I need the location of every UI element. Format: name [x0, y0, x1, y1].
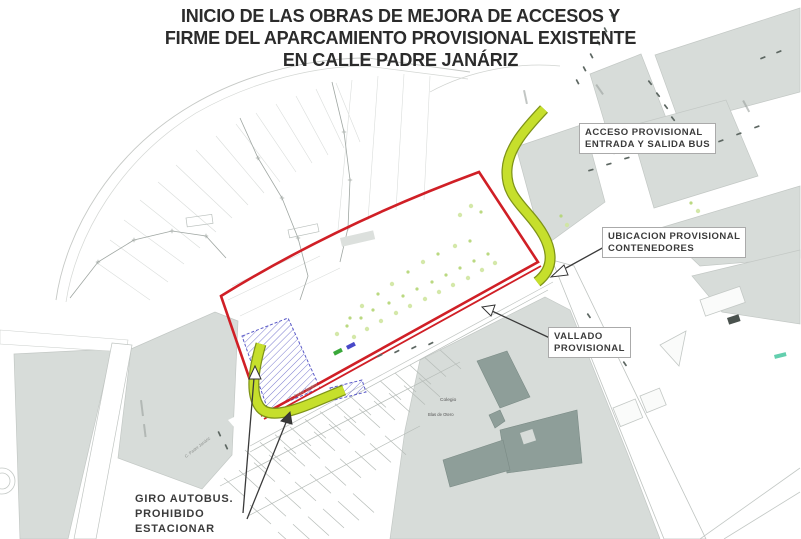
acceso-line2: ENTRADA Y SALIDA BUS — [585, 139, 710, 151]
giro-line3: ESTACIONAR — [135, 522, 233, 537]
map-title-line1: INICIO DE LAS OBRAS DE MEJORA DE ACCESOS… — [0, 5, 801, 27]
colegio-sub-label: Blas de Otero — [428, 412, 454, 417]
map-title-line2: FIRME DEL APARCAMIENTO PROVISIONAL EXIST… — [0, 27, 801, 49]
vallado-line1: VALLADO — [554, 331, 625, 343]
giro-line2: PROHIBIDO — [135, 507, 233, 522]
vallado-line2: PROVISIONAL — [554, 343, 625, 355]
annotation-giro-autobus: GIRO AUTOBUS. PROHIBIDO ESTACIONAR — [130, 489, 238, 539]
annotation-ubicacion-contenedores: UBICACION PROVISIONAL CONTENEDORES — [602, 227, 746, 258]
ubicacion-line1: UBICACION PROVISIONAL — [608, 231, 740, 243]
container-marks — [333, 342, 356, 356]
acceso-line1: ACCESO PROVISIONAL — [585, 127, 710, 139]
site-plan: Colegio Blas de Otero C. Pa — [0, 0, 801, 539]
map-title-line3: EN CALLE PADRE JANÁRIZ — [0, 49, 801, 71]
annotation-acceso-provisional: ACCESO PROVISIONAL ENTRADA Y SALIDA BUS — [579, 123, 716, 154]
survey-lines — [56, 58, 560, 316]
giro-line1: GIRO AUTOBUS. — [135, 492, 233, 507]
traverse-lines — [70, 82, 350, 300]
existing-path — [340, 230, 375, 246]
colegio-label: Colegio — [440, 397, 457, 403]
ubicacion-line2: CONTENEDORES — [608, 243, 740, 255]
site-plan-map: Colegio Blas de Otero C. Pa — [0, 0, 801, 539]
parcel-lines — [96, 74, 430, 316]
annotation-vallado-provisional: VALLADO PROVISIONAL — [548, 327, 631, 358]
city-blocks — [14, 8, 800, 539]
map-title: INICIO DE LAS OBRAS DE MEJORA DE ACCESOS… — [0, 5, 801, 71]
